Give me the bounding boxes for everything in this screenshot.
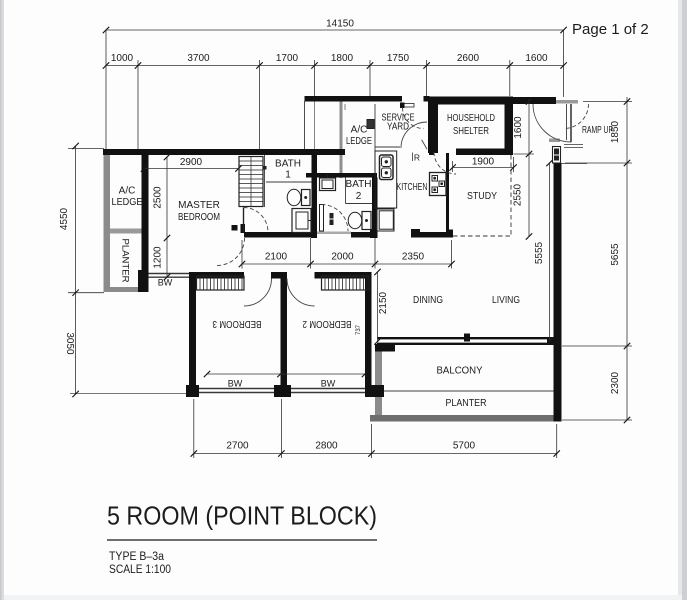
svg-text:2900: 2900 bbox=[180, 157, 203, 168]
svg-text:A/C: A/C bbox=[119, 186, 136, 197]
svg-text:BATH: BATH bbox=[275, 159, 301, 170]
svg-text:BEDROOM: BEDROOM bbox=[178, 212, 220, 223]
svg-text:1900: 1900 bbox=[472, 157, 495, 168]
svg-text:1750: 1750 bbox=[387, 53, 410, 64]
svg-text:A/C: A/C bbox=[351, 125, 368, 136]
svg-text:1600: 1600 bbox=[513, 116, 524, 139]
svg-text:PLANTER: PLANTER bbox=[120, 239, 131, 283]
svg-text:2300: 2300 bbox=[610, 371, 621, 394]
svg-text:PLANTER: PLANTER bbox=[446, 398, 487, 409]
svg-text:BEDROOM 2: BEDROOM 2 bbox=[302, 318, 351, 329]
svg-text:BW: BW bbox=[228, 379, 243, 389]
svg-text:5555: 5555 bbox=[534, 241, 545, 264]
svg-text:YARD: YARD bbox=[387, 122, 409, 133]
svg-text:737: 737 bbox=[356, 324, 362, 335]
svg-text:1700: 1700 bbox=[276, 53, 299, 64]
svg-text:MASTER: MASTER bbox=[178, 200, 220, 211]
svg-text:3700: 3700 bbox=[187, 53, 210, 64]
svg-text:BATH: BATH bbox=[346, 179, 372, 190]
svg-text:5655: 5655 bbox=[610, 243, 621, 266]
svg-text:2600: 2600 bbox=[457, 53, 480, 64]
svg-text:3050: 3050 bbox=[64, 332, 75, 355]
svg-text:LIVING: LIVING bbox=[492, 295, 520, 306]
svg-text:BEDROOM 3: BEDROOM 3 bbox=[212, 318, 261, 329]
svg-text:KITCHEN: KITCHEN bbox=[397, 182, 428, 193]
svg-text:5700: 5700 bbox=[453, 441, 476, 452]
svg-text:2700: 2700 bbox=[226, 441, 249, 452]
svg-text:2100: 2100 bbox=[265, 252, 288, 263]
svg-text:LEDGE: LEDGE bbox=[112, 197, 143, 208]
svg-text:2: 2 bbox=[356, 191, 362, 202]
svg-text:LEDGE: LEDGE bbox=[346, 136, 372, 147]
svg-text:STUDY: STUDY bbox=[467, 191, 497, 202]
svg-text:1: 1 bbox=[285, 170, 291, 181]
svg-text:SCALE 1:100: SCALE 1:100 bbox=[109, 564, 171, 576]
svg-text:1600: 1600 bbox=[525, 53, 548, 64]
svg-text:BW: BW bbox=[158, 278, 173, 288]
svg-text:14150: 14150 bbox=[326, 19, 354, 30]
svg-text:2500: 2500 bbox=[153, 186, 164, 209]
svg-text:R: R bbox=[414, 153, 420, 163]
svg-text:HOUSEHOLD: HOUSEHOLD bbox=[447, 113, 495, 124]
svg-text:2350: 2350 bbox=[402, 252, 425, 263]
svg-text:Page 1 of 2: Page 1 of 2 bbox=[572, 21, 649, 38]
svg-text:2800: 2800 bbox=[315, 441, 338, 452]
svg-text:1800: 1800 bbox=[331, 53, 354, 64]
svg-text:1000: 1000 bbox=[111, 53, 134, 64]
svg-text:2550: 2550 bbox=[513, 183, 524, 206]
svg-text:DINING: DINING bbox=[413, 295, 443, 306]
svg-text:SHELTER: SHELTER bbox=[453, 126, 489, 137]
svg-text:2000: 2000 bbox=[331, 252, 354, 263]
svg-text:5 ROOM (POINT BLOCK): 5 ROOM (POINT BLOCK) bbox=[107, 501, 377, 531]
svg-text:4550: 4550 bbox=[59, 207, 70, 230]
svg-text:2150: 2150 bbox=[378, 291, 389, 314]
svg-text:RAMP UP: RAMP UP bbox=[582, 125, 613, 136]
svg-text:BALCONY: BALCONY bbox=[437, 366, 483, 377]
svg-text:1200: 1200 bbox=[153, 246, 164, 269]
svg-text:TYPE B–3a: TYPE B–3a bbox=[109, 551, 165, 563]
svg-text:BW: BW bbox=[321, 379, 336, 389]
